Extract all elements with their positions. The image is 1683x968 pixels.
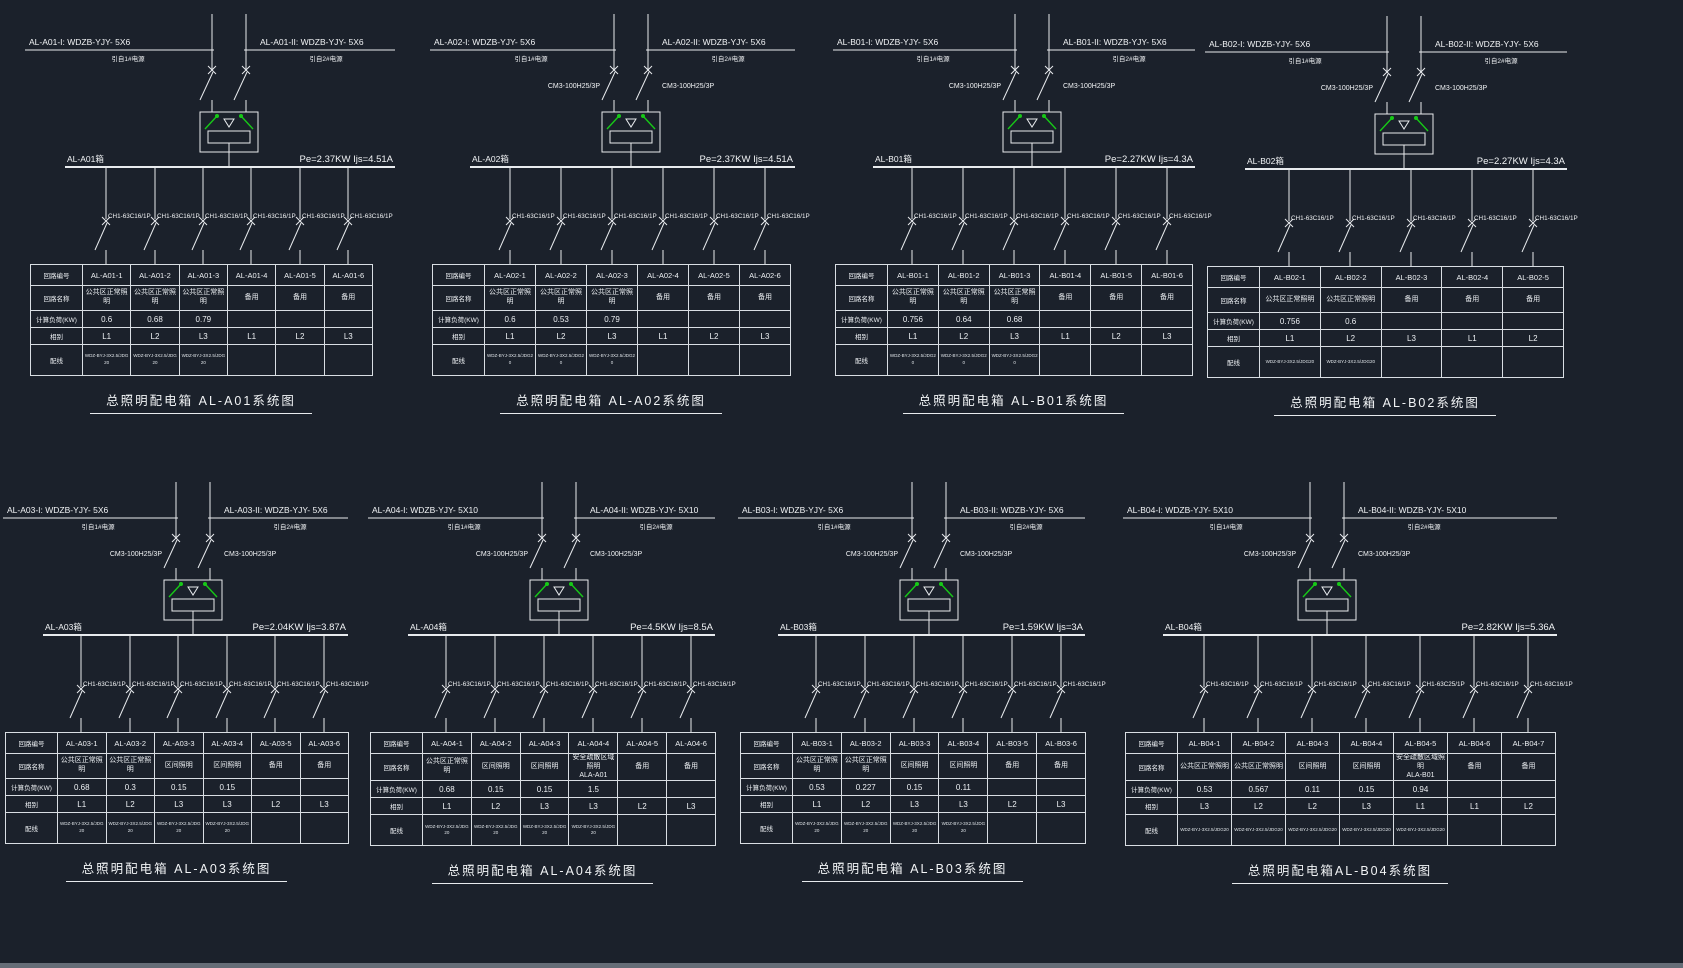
table-cell: 备用 — [1091, 286, 1142, 311]
branch-breaker-label: CH1-63C16/1P — [512, 213, 555, 220]
branch-breaker-icon — [1461, 225, 1473, 252]
table-cell: L2 — [988, 796, 1037, 813]
incoming-breaker-label: CM3-100H25/3P — [1244, 551, 1296, 558]
table-cell: L3 — [203, 796, 252, 813]
table-cell — [689, 311, 740, 328]
wiring-spec: WDZ-BYJ-3X2.5/JDG20 — [843, 821, 889, 835]
table-cell: WDZ-BYJ-3X2.5/JDG20 — [1260, 347, 1321, 378]
bus-name-label: AL-B02箱 — [1247, 156, 1284, 166]
table-cell: 公共区正常照明 — [587, 286, 638, 311]
table-cell: L2 — [106, 796, 155, 813]
row-label: 计算负荷(KW) — [433, 311, 485, 328]
row-label: 回路编号 — [836, 265, 888, 286]
feeder-right-label: AL-B01-II: WDZB-YJY- 5X6 — [1063, 37, 1167, 47]
panel-title: 总照明配电箱 AL-B03系统图 — [740, 858, 1085, 882]
table-cell: 公共区正常照明 — [106, 754, 155, 779]
table-cell — [1091, 311, 1142, 328]
table-cell: L2 — [1232, 798, 1286, 815]
table-cell: AL-A03-4 — [203, 733, 252, 754]
bus-name-label: AL-A03箱 — [45, 622, 82, 632]
table-cell — [1502, 781, 1556, 798]
table-cell: 区间照明 — [203, 754, 252, 779]
row-label: 相别 — [1126, 798, 1178, 815]
branch-breaker-icon — [1517, 691, 1529, 718]
source-2-label: 引自2#电源 — [273, 522, 307, 531]
row-label: 回路编号 — [741, 733, 793, 754]
branch-breaker-label: CH1-63C16/1P — [716, 213, 759, 220]
circuit-table: 回路编号AL-A02-1AL-A02-2AL-A02-3AL-A02-4AL-A… — [432, 264, 791, 376]
row-label: 回路编号 — [1126, 733, 1178, 754]
panel-title-text: 总照明配电箱AL-B04系统图 — [1232, 860, 1448, 884]
branch-breaker-icon — [1409, 691, 1421, 718]
wiring-spec: WDZ-BYJ-3X2.5/JDG20 — [940, 353, 988, 367]
source-1-label: 引自1#电源 — [916, 54, 950, 63]
source-2-label: 引自2#电源 — [1112, 54, 1146, 63]
ats-contact-left — [1008, 116, 1020, 129]
table-cell: L2 — [841, 796, 890, 813]
table-cell: 公共区正常照明 — [536, 286, 587, 311]
table-cell — [638, 345, 689, 376]
panel-AL-B03: AL-B03-I: WDZB-YJY- 5X6引自1#电源AL-B03-II: … — [738, 482, 1085, 882]
panel-AL-A04: AL-A04-I: WDZB-YJY- 5X10引自1#电源AL-A04-II:… — [368, 482, 715, 884]
incoming-breaker-icon — [1409, 74, 1422, 102]
table-cell: AL-A01-2 — [131, 265, 179, 286]
panel-AL-B02: AL-B02-I: WDZB-YJY- 5X6引自1#电源AL-B02-II: … — [1205, 16, 1567, 416]
table-cell — [1442, 313, 1503, 330]
table-cell: AL-B02-4 — [1442, 267, 1503, 288]
branch-breaker-label: CH1-63C16/1P — [1476, 681, 1519, 688]
table-cell: 0.68 — [423, 781, 472, 798]
branch-breaker-icon — [854, 691, 866, 718]
table-cell: 0.53 — [1178, 781, 1232, 798]
table-cell — [689, 345, 740, 376]
power-rating-label: Pe=2.37KW Ijs=4.51A — [700, 154, 794, 165]
row-label: 配线 — [371, 815, 423, 846]
panel-title: 总照明配电箱AL-B04系统图 — [1125, 860, 1555, 884]
table-cell — [1502, 815, 1556, 846]
row-label: 回路名称 — [1208, 288, 1260, 313]
table-cell: 0.68 — [58, 779, 107, 796]
table-cell: 公共区正常照明 — [131, 286, 179, 311]
ats-contact-right — [571, 584, 583, 597]
branch-breaker-icon — [167, 691, 179, 718]
feeder-left-label: AL-B04-I: WDZB-YJY- 5X10 — [1127, 505, 1233, 515]
table-cell: 备用 — [227, 286, 275, 311]
branch-breaker-icon — [533, 691, 545, 718]
table-cell: L3 — [520, 798, 569, 815]
power-rating-label: Pe=4.5KW Ijs=8.5A — [630, 622, 714, 633]
ats-contact-left — [1303, 584, 1315, 597]
source-2-label: 引自2#电源 — [711, 54, 745, 63]
table-cell: 备用 — [324, 286, 372, 311]
power-rating-label: Pe=2.37KW Ijs=4.51A — [300, 154, 394, 165]
table-cell — [1503, 313, 1564, 330]
table-cell: L1 — [1040, 328, 1091, 345]
table-cell: L1 — [888, 328, 939, 345]
row-label: 配线 — [1208, 347, 1260, 378]
circuit-table: 回路编号AL-B01-1AL-B01-2AL-B01-3AL-B01-4AL-B… — [835, 264, 1193, 376]
branch-breaker-label: CH1-63C16/1P — [253, 213, 296, 220]
branch-breaker-icon — [70, 691, 82, 718]
incoming-breaker-icon — [1298, 540, 1311, 568]
table-cell — [618, 781, 667, 798]
table-cell: 0.6 — [83, 311, 131, 328]
table-cell: L3 — [155, 796, 204, 813]
table-cell — [988, 813, 1037, 844]
table-cell: L2 — [131, 328, 179, 345]
wiring-spec: WDZ-BYJ-3X2.5/JDG20 — [522, 824, 568, 838]
table-cell — [324, 345, 372, 376]
branch-breaker-icon — [499, 223, 511, 250]
table-cell: 备用 — [276, 286, 324, 311]
table-cell: 区间照明 — [520, 754, 569, 781]
table-cell: L2 — [938, 328, 989, 345]
branch-breaker-icon — [1001, 691, 1013, 718]
oneline-diagram: AL-A04-I: WDZB-YJY- 5X10引自1#电源AL-A04-II:… — [368, 482, 715, 732]
table-cell: WDZ-BYJ-3X2.5/JDG20 — [587, 345, 638, 376]
branch-breaker-icon — [1247, 691, 1259, 718]
table-cell: 0.15 — [890, 779, 939, 796]
branch-breaker-icon — [582, 691, 594, 718]
table-cell: 0.756 — [1260, 313, 1321, 330]
incoming-breaker-icon — [198, 540, 211, 568]
source-2-label: 引自2#电源 — [639, 522, 673, 531]
table-cell: WDZ-BYJ-3X2.5/JDG20 — [471, 815, 520, 846]
incoming-breaker-label: CM3-100H25/3P — [476, 551, 528, 558]
wiring-spec: WDZ-BYJ-3X2.5/JDG20 — [205, 821, 251, 835]
bus-name-label: AL-A04箱 — [410, 622, 447, 632]
table-cell — [252, 779, 301, 796]
table-cell: 公共区正常照明 — [793, 754, 842, 779]
table-cell — [227, 311, 275, 328]
table-cell — [1037, 813, 1086, 844]
wiring-spec: WDZ-BYJ-3X2.5/JDG20 — [1261, 359, 1319, 366]
wiring-spec: WDZ-BYJ-3X2.5/JDG20 — [59, 821, 105, 835]
incoming-breaker-icon — [636, 72, 649, 100]
incoming-breaker-icon — [1003, 72, 1016, 100]
table-cell: AL-B03-3 — [890, 733, 939, 754]
row-label: 配线 — [1126, 815, 1178, 846]
table-cell: WDZ-BYJ-3X2.5/JDG20 — [938, 345, 989, 376]
branch-breaker-label: CH1-63C16/1P — [448, 681, 491, 688]
table-cell: L2 — [618, 798, 667, 815]
table-cell: 公共区正常照明 — [1178, 754, 1232, 781]
branch-breaker-icon — [1301, 691, 1313, 718]
table-cell: 安全疏散区域照明 ALA-B01 — [1394, 754, 1448, 781]
branch-breaker-icon — [1193, 691, 1205, 718]
table-cell: 0.15 — [520, 781, 569, 798]
table-cell: 备用 — [1502, 754, 1556, 781]
source-1-label: 引自1#电源 — [1288, 56, 1322, 65]
branch-breaker-label: CH1-63C16/1P — [1413, 215, 1456, 222]
table-cell: AL-B02-5 — [1503, 267, 1564, 288]
feeder-right-label: AL-B02-II: WDZB-YJY- 5X6 — [1435, 39, 1539, 49]
circuit-table: 回路编号AL-B03-1AL-B03-2AL-B03-3AL-B03-4AL-B… — [740, 732, 1086, 844]
incoming-breaker-icon — [934, 540, 947, 568]
panel-title-text: 总照明配电箱 AL-A01系统图 — [90, 390, 312, 414]
branch-breaker-label: CH1-63C16/1P — [1063, 681, 1106, 688]
panel-title: 总照明配电箱 AL-A03系统图 — [5, 858, 348, 882]
table-cell: AL-A02-1 — [485, 265, 536, 286]
power-rating-label: Pe=2.27KW Ijs=4.3A — [1477, 156, 1566, 167]
table-cell: 0.15 — [155, 779, 204, 796]
table-cell: AL-A02-2 — [536, 265, 587, 286]
table-cell: WDZ-BYJ-3X2.5/JDG20 — [1394, 815, 1448, 846]
row-label: 相别 — [31, 328, 83, 345]
table-cell: 公共区正常照明 — [888, 286, 939, 311]
source-2-label: 引自2#电源 — [309, 54, 343, 63]
row-label: 计算负荷(KW) — [31, 311, 83, 328]
table-cell: 区间照明 — [1286, 754, 1340, 781]
row-label: 计算负荷(KW) — [6, 779, 58, 796]
power-rating-label: Pe=2.04KW Ijs=3.87A — [253, 622, 347, 633]
feeder-right-label: AL-A02-II: WDZB-YJY- 5X6 — [662, 37, 766, 47]
row-label: 配线 — [741, 813, 793, 844]
panel-title: 总照明配电箱 AL-A02系统图 — [432, 390, 790, 414]
feeder-left-label: AL-A02-I: WDZB-YJY- 5X6 — [434, 37, 536, 47]
table-cell: L3 — [569, 798, 618, 815]
branch-breaker-label: CH1-63C16/1P — [1535, 215, 1578, 222]
canvas-edge — [0, 963, 1683, 968]
branch-breaker-label: CH1-63C16/1P — [563, 213, 606, 220]
table-cell: AL-A02-6 — [740, 265, 791, 286]
table-cell — [1040, 311, 1091, 328]
table-cell: L2 — [276, 328, 324, 345]
branch-breaker-icon — [952, 691, 964, 718]
table-cell: AL-B02-2 — [1320, 267, 1381, 288]
branch-breaker-icon — [484, 691, 496, 718]
row-label: 回路名称 — [836, 286, 888, 311]
table-cell: 备用 — [667, 754, 716, 781]
table-cell: AL-A03-5 — [252, 733, 301, 754]
panel-title: 总照明配电箱 AL-B01系统图 — [835, 390, 1192, 414]
incoming-breaker-label: CM3-100H25/3P — [1435, 85, 1487, 92]
row-label: 回路编号 — [31, 265, 83, 286]
ats-contact-left — [905, 584, 917, 597]
table-cell: 备用 — [1037, 754, 1086, 779]
table-cell: 备用 — [638, 286, 689, 311]
wiring-spec: WDZ-BYJ-3X2.5/JDG20 — [570, 824, 616, 838]
branch-breaker-label: CH1-63C16/1P — [693, 681, 736, 688]
table-cell: AL-A02-4 — [638, 265, 689, 286]
circuit-table: 回路编号AL-A03-1AL-A03-2AL-A03-3AL-A03-4AL-A… — [5, 732, 349, 844]
table-cell: L2 — [1091, 328, 1142, 345]
table-cell — [276, 345, 324, 376]
table-cell — [1091, 345, 1142, 376]
wiring-spec: WDZ-BYJ-3X2.5/JDG20 — [181, 353, 226, 367]
source-2-label: 引自2#电源 — [1009, 522, 1043, 531]
circuit-table: 回路编号AL-B02-1AL-B02-2AL-B02-3AL-B02-4AL-B… — [1207, 266, 1564, 378]
table-cell: AL-B03-6 — [1037, 733, 1086, 754]
wiring-spec: WDZ-BYJ-3X2.5/JDG20 — [156, 821, 202, 835]
table-cell: WDZ-BYJ-3X2.5/JDG20 — [58, 813, 107, 844]
table-cell: AL-B04-2 — [1232, 733, 1286, 754]
table-cell: 0.11 — [1286, 781, 1340, 798]
table-cell: 区间照明 — [890, 754, 939, 779]
table-cell: 公共区正常照明 — [841, 754, 890, 779]
feeder-right-label: AL-A03-II: WDZB-YJY- 5X6 — [224, 505, 328, 515]
bus-name-label: AL-B04箱 — [1165, 622, 1202, 632]
incoming-breaker-icon — [602, 72, 615, 100]
branch-breaker-label: CH1-63C16/1P — [180, 681, 223, 688]
row-label: 回路编号 — [433, 265, 485, 286]
ats-contact-right — [1416, 118, 1428, 131]
panel-AL-A02: AL-A02-I: WDZB-YJY- 5X6引自1#电源AL-A02-II: … — [430, 14, 795, 414]
table-cell: WDZ-BYJ-3X2.5/JDG20 — [83, 345, 131, 376]
branch-breaker-icon — [1003, 223, 1015, 250]
panel-AL-A03: AL-A03-I: WDZB-YJY- 5X6引自1#电源AL-A03-II: … — [3, 482, 348, 882]
branch-breaker-label: CH1-63C16/1P — [277, 681, 320, 688]
table-cell: 备用 — [1442, 288, 1503, 313]
branch-breaker-icon — [703, 223, 715, 250]
panel-title-text: 总照明配电箱 AL-B02系统图 — [1274, 392, 1496, 416]
table-cell: 区间照明 — [1340, 754, 1394, 781]
feeder-right-label: AL-B03-II: WDZB-YJY- 5X6 — [960, 505, 1064, 515]
table-cell: AL-B02-3 — [1381, 267, 1442, 288]
source-1-label: 引自1#电源 — [817, 522, 851, 531]
table-cell: AL-A04-1 — [423, 733, 472, 754]
branch-breaker-icon — [1400, 225, 1412, 252]
incoming-breaker-icon — [564, 540, 577, 568]
table-cell: L3 — [324, 328, 372, 345]
oneline-diagram: AL-B04-I: WDZB-YJY- 5X10引自1#电源AL-B04-II:… — [1123, 482, 1557, 732]
oneline-diagram: AL-A03-I: WDZB-YJY- 5X6引自1#电源AL-A03-II: … — [3, 482, 348, 732]
wiring-spec: WDZ-BYJ-3X2.5/JDG20 — [588, 353, 636, 367]
table-cell — [1040, 345, 1091, 376]
row-label: 计算负荷(KW) — [741, 779, 793, 796]
branch-breaker-label: CH1-63C16/1P — [1291, 215, 1334, 222]
table-cell: AL-A01-3 — [179, 265, 227, 286]
branch-breaker-label: CH1-63C16/1P — [614, 213, 657, 220]
branch-breaker-label: CH1-63C25/1P — [1422, 681, 1465, 688]
wiring-spec: WDZ-BYJ-3X2.5/JDG20 — [1287, 827, 1338, 834]
panel-title-text: 总照明配电箱 AL-A03系统图 — [66, 858, 288, 882]
row-label: 回路名称 — [371, 754, 423, 781]
source-1-label: 引自1#电源 — [447, 522, 481, 531]
incoming-breaker-label: CM3-100H25/3P — [1063, 83, 1115, 90]
ats-contact-right — [941, 584, 953, 597]
branch-breaker-label: CH1-63C16/1P — [1206, 681, 1249, 688]
table-cell: 0.64 — [938, 311, 989, 328]
incoming-breaker-label: CM3-100H25/3P — [960, 551, 1012, 558]
table-cell: WDZ-BYJ-3X2.5/JDG20 — [423, 815, 472, 846]
table-cell — [300, 813, 349, 844]
panel-AL-A01: AL-A01-I: WDZB-YJY- 5X6引自1#电源AL-A01-II: … — [25, 14, 395, 414]
table-cell: 备用 — [988, 754, 1037, 779]
branch-breaker-label: CH1-63C16/1P — [546, 681, 589, 688]
branch-breaker-label: CH1-63C16/1P — [595, 681, 638, 688]
row-label: 计算负荷(KW) — [1126, 781, 1178, 798]
row-label: 相别 — [836, 328, 888, 345]
table-cell: L3 — [179, 328, 227, 345]
row-label: 配线 — [836, 345, 888, 376]
table-cell: 备用 — [1040, 286, 1091, 311]
feeder-left-label: AL-A04-I: WDZB-YJY- 5X10 — [372, 505, 478, 515]
table-cell: L2 — [1320, 330, 1381, 347]
branch-breaker-icon — [435, 691, 447, 718]
table-cell: WDZ-BYJ-3X2.5/JDG20 — [841, 813, 890, 844]
row-label: 回路名称 — [31, 286, 83, 311]
table-cell: 1.5 — [569, 781, 618, 798]
wiring-spec: WDZ-BYJ-3X2.5/JDG20 — [1179, 827, 1230, 834]
table-cell: 备用 — [689, 286, 740, 311]
table-cell: 0.567 — [1232, 781, 1286, 798]
ats-contact-right — [205, 584, 217, 597]
oneline-diagram: AL-A01-I: WDZB-YJY- 5X6引自1#电源AL-A01-II: … — [25, 14, 395, 264]
ats-contact-right — [1339, 584, 1351, 597]
row-label: 回路名称 — [1126, 754, 1178, 781]
table-cell: L1 — [423, 798, 472, 815]
ats-contact-right — [1044, 116, 1056, 129]
branch-breaker-label: CH1-63C16/1P — [1014, 681, 1057, 688]
table-cell — [1381, 313, 1442, 330]
table-cell: L1 — [1394, 798, 1448, 815]
branch-breaker-label: CH1-63C16/1P — [965, 213, 1008, 220]
branch-breaker-icon — [903, 691, 915, 718]
branch-breaker-label: CH1-63C16/1P — [1530, 681, 1573, 688]
branch-breaker-icon — [289, 223, 301, 250]
panel-title: 总照明配电箱 AL-A01系统图 — [30, 390, 372, 414]
table-cell: L3 — [1037, 796, 1086, 813]
panel-AL-B01: AL-B01-I: WDZB-YJY- 5X6引自1#电源AL-B01-II: … — [833, 14, 1195, 414]
wiring-spec: WDZ-BYJ-3X2.5/JDG20 — [1233, 827, 1284, 834]
table-cell: L2 — [536, 328, 587, 345]
incoming-breaker-label: CM3-100H25/3P — [110, 551, 162, 558]
table-cell: AL-B01-4 — [1040, 265, 1091, 286]
table-cell: WDZ-BYJ-3X2.5/JDG20 — [203, 813, 252, 844]
table-cell — [1448, 781, 1502, 798]
row-label: 计算负荷(KW) — [836, 311, 888, 328]
bus-name-label: AL-B03箱 — [780, 622, 817, 632]
wiring-spec: WDZ-BYJ-3X2.5/JDG20 — [889, 353, 937, 367]
panel-title: 总照明配电箱 AL-B02系统图 — [1207, 392, 1563, 416]
power-rating-label: Pe=1.59KW Ijs=3A — [1003, 622, 1084, 633]
table-cell: L3 — [667, 798, 716, 815]
incoming-breaker-label: CM3-100H25/3P — [590, 551, 642, 558]
branch-breaker-label: CH1-63C16/1P — [1260, 681, 1303, 688]
branch-breaker-icon — [652, 223, 664, 250]
branch-breaker-icon — [680, 691, 692, 718]
table-cell: 公共区正常照明 — [423, 754, 472, 781]
incoming-breaker-label: CM3-100H25/3P — [224, 551, 276, 558]
ats-contact-left — [205, 116, 217, 129]
cad-drawing-canvas[interactable]: AL-A01-I: WDZB-YJY- 5X6引自1#电源AL-A01-II: … — [0, 0, 1683, 963]
branch-breaker-icon — [144, 223, 156, 250]
feeder-left-label: AL-B03-I: WDZB-YJY- 5X6 — [742, 505, 844, 515]
table-cell: AL-B04-4 — [1340, 733, 1394, 754]
row-label: 配线 — [31, 345, 83, 376]
row-label: 相别 — [6, 796, 58, 813]
table-cell: L1 — [227, 328, 275, 345]
branch-breaker-label: CH1-63C16/1P — [83, 681, 126, 688]
branch-breaker-label: CH1-63C16/1P — [350, 213, 393, 220]
branch-breaker-label: CH1-63C16/1P — [1016, 213, 1059, 220]
panel-title-text: 总照明配电箱 AL-A02系统图 — [500, 390, 722, 414]
panel-title-text: 总照明配电箱 AL-A04系统图 — [432, 860, 654, 884]
branch-breaker-icon — [95, 223, 107, 250]
table-cell: AL-A03-6 — [300, 733, 349, 754]
branch-breaker-label: CH1-63C16/1P — [108, 213, 151, 220]
table-cell: AL-A03-2 — [106, 733, 155, 754]
table-cell — [1381, 347, 1442, 378]
power-rating-label: Pe=2.27KW Ijs=4.3A — [1105, 154, 1194, 165]
branch-breaker-label: CH1-63C16/1P — [157, 213, 200, 220]
table-cell: 公共区正常照明 — [938, 286, 989, 311]
table-cell: 0.68 — [131, 311, 179, 328]
wiring-spec: WDZ-BYJ-3X2.5/JDG20 — [108, 821, 154, 835]
branch-breaker-label: CH1-63C16/1P — [132, 681, 175, 688]
table-cell: 公共区正常照明 — [1260, 288, 1321, 313]
